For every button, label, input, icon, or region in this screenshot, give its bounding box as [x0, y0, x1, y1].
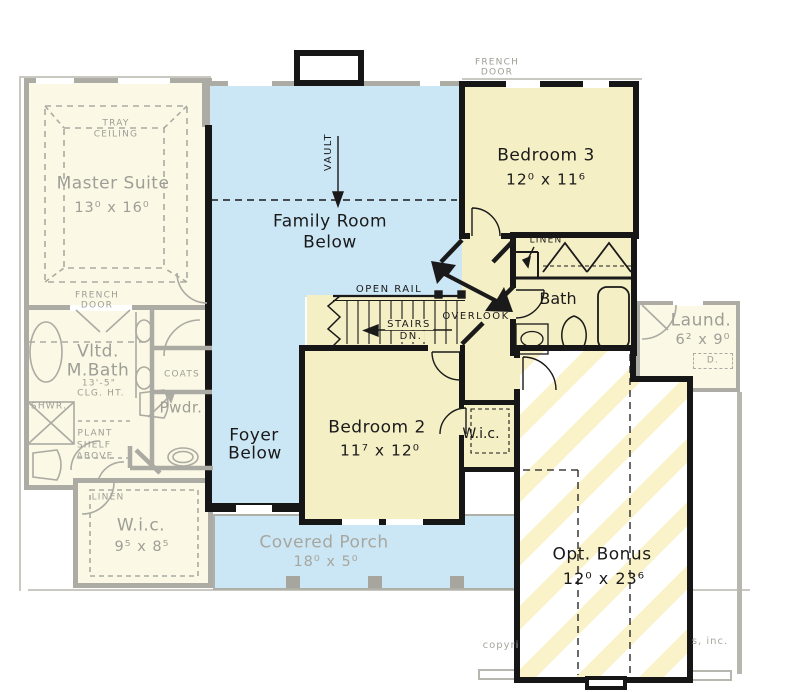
bedroom3-label: Bedroom 3	[497, 148, 595, 165]
plant-shelf-label-2: SHELF	[77, 442, 111, 451]
bath-label: Bath	[539, 291, 576, 307]
door-arc-bedroom2	[432, 352, 460, 380]
laundry-label: Laund.	[671, 313, 732, 330]
french-door-leaves	[76, 310, 130, 332]
dryer-label: D.	[707, 357, 719, 366]
tub-icon	[30, 322, 62, 382]
bath-sink-icon	[521, 332, 543, 347]
powder-label: Pwdr.	[160, 401, 203, 416]
tray-ceiling-label-1: TRAY	[102, 120, 129, 129]
door-arc-master	[177, 273, 207, 303]
bedroom2-label: Bedroom 2	[328, 420, 426, 437]
foyer-label-1: Foyer	[229, 428, 279, 445]
tray-ceiling-inner	[64, 128, 164, 268]
bedroom2-dims: 11⁷ x 12⁰	[340, 443, 420, 459]
french-door-master-label-2: DOOR	[81, 302, 113, 311]
bonus-break-lines	[523, 354, 630, 675]
floor-plan: TRAY CEILING Master Suite 13⁰ x 16⁰ FREN…	[0, 0, 799, 692]
overlook-arrow-icon	[431, 261, 513, 312]
wic-upper-label: W.i.c.	[462, 427, 499, 441]
linen-hall-label: LINEN	[530, 237, 563, 246]
tray-ceiling-label-2: CEILING	[94, 131, 138, 140]
vanity-sink-icon-2	[136, 367, 152, 389]
master-suite-dims: 13⁰ x 16⁰	[74, 201, 149, 216]
open-rail-label: OPEN RAIL	[356, 285, 422, 295]
master-suite-label: Master Suite	[57, 176, 170, 193]
bonus-label: Opt. Bonus	[552, 547, 651, 564]
porch-label: Covered Porch	[259, 535, 388, 552]
overlook-label: OVERLOOK	[442, 312, 509, 322]
vanity-sink-icon-1	[136, 320, 152, 342]
porch-dims: 18⁰ x 5⁰	[293, 555, 358, 570]
bedroom3-dims: 12⁰ x 11⁶	[506, 172, 586, 188]
mbath-label-1: Vltd.	[77, 344, 119, 361]
mbath-label-4: CLG. HT.	[77, 390, 125, 399]
copyright-left: copyri	[483, 641, 520, 651]
door-arc-bedroom3	[472, 208, 500, 236]
family-room-label-1: Family Room	[273, 214, 387, 231]
laundry-dims: 6² x 9⁰	[676, 333, 731, 348]
mbath-label-3: 13'-5"	[82, 380, 116, 389]
wic-master-label: W.i.c.	[117, 518, 165, 535]
mbath-label-2: M.Bath	[67, 363, 130, 380]
stair-break	[328, 296, 340, 348]
family-room-label-2: Below	[303, 235, 357, 252]
french-door-master-label-1: FRENCH	[75, 292, 119, 301]
stairs-dn-label: DN.	[398, 331, 425, 342]
bathtub-icon	[598, 287, 629, 349]
wic-master-dims: 9⁵ x 8⁵	[115, 540, 170, 555]
shower-label: SHWR.	[31, 403, 67, 412]
vault-label: VAULT	[324, 133, 334, 171]
bath-toilet-icon	[562, 316, 586, 350]
french-door-bed3-label-2: DOOR	[481, 69, 513, 78]
copyright-right: s, inc.	[692, 637, 728, 647]
foyer-label-2: Below	[228, 446, 282, 463]
linen-cell	[512, 252, 538, 278]
door-arc-bonus	[523, 357, 556, 390]
toilet-icon-1	[33, 450, 61, 480]
bonus-dims: 12⁰ x 23⁶	[563, 571, 645, 587]
stairs-label: STAIRS	[385, 319, 433, 330]
linen-ghost-label: LINEN	[92, 494, 125, 503]
plant-shelf-label-1: PLANT	[77, 430, 112, 439]
coats-label: COATS	[164, 371, 200, 380]
french-door-bed3-label-1: FRENCH	[475, 59, 519, 68]
plant-shelf-label-3: ABOVE	[77, 453, 114, 462]
door-arc-hall	[164, 320, 200, 356]
bifold-doors	[543, 243, 631, 272]
